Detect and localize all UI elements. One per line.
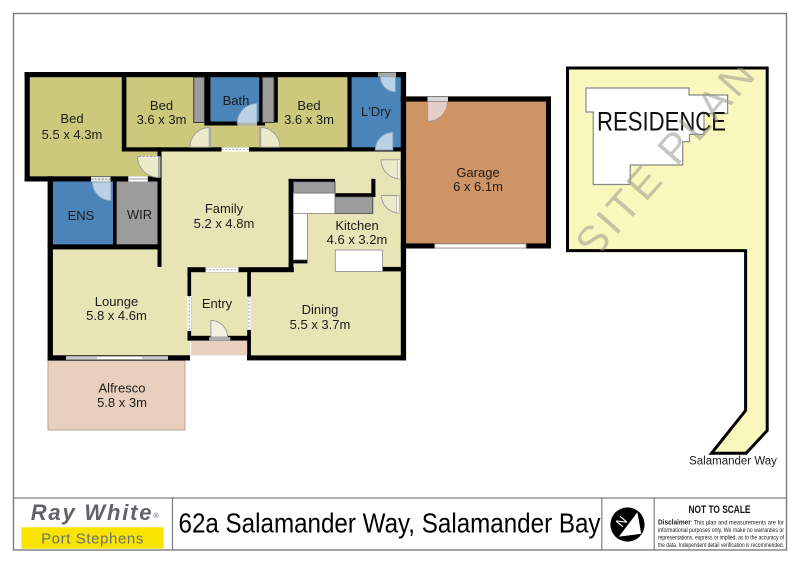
svg-text:Entry: Entry — [202, 296, 233, 311]
svg-text:3.6 x 3m: 3.6 x 3m — [284, 112, 334, 127]
svg-text:5.5 x 3.7m: 5.5 x 3.7m — [290, 317, 351, 332]
svg-text:5.2 x 4.8m: 5.2 x 4.8m — [194, 216, 255, 231]
svg-text:Lounge: Lounge — [95, 294, 138, 309]
svg-text:6 x 6.1m: 6 x 6.1m — [453, 179, 503, 194]
svg-text:Port Stephens: Port Stephens — [41, 531, 144, 548]
svg-text:Salamander Way: Salamander Way — [689, 456, 777, 468]
svg-text:ENS: ENS — [68, 208, 95, 223]
svg-text:Kitchen: Kitchen — [335, 218, 378, 233]
svg-text:NOT TO SCALE: NOT TO SCALE — [689, 504, 751, 516]
svg-text:Bed: Bed — [60, 111, 83, 126]
svg-text:the data. Independent detail v: the data. Independent detail verificatio… — [658, 542, 784, 549]
svg-text:®: ® — [154, 512, 160, 520]
svg-text:L'Dry: L'Dry — [361, 104, 391, 119]
svg-text:Disclaimer: This plan and meas: Disclaimer: This plan and measurements a… — [658, 518, 785, 527]
svg-text:5.8 x 3m: 5.8 x 3m — [97, 395, 147, 410]
svg-text:Bed: Bed — [297, 98, 320, 113]
svg-text:WIR: WIR — [127, 207, 152, 222]
svg-text:Dining: Dining — [302, 302, 339, 317]
svg-text:4.6 x 3.2m: 4.6 x 3.2m — [327, 232, 388, 247]
svg-text:3.6 x 3m: 3.6 x 3m — [137, 112, 187, 127]
svg-text:Family: Family — [205, 201, 244, 216]
svg-text:representations, express or im: representations, express or implied, as … — [658, 535, 784, 542]
svg-text:Bed: Bed — [150, 98, 173, 113]
svg-text:5.5 x 4.3m: 5.5 x 4.3m — [42, 127, 103, 142]
svg-text:62a Salamander Way, Salamander: 62a Salamander Way, Salamander Bay — [179, 508, 601, 539]
svg-text:Ray White: Ray White — [31, 500, 154, 525]
svg-text:Garage: Garage — [456, 165, 499, 180]
svg-text:informational purposes only. W: informational purposes only. We make no … — [658, 527, 785, 534]
svg-text:Alfresco: Alfresco — [99, 381, 146, 396]
svg-text:Bath: Bath — [223, 93, 250, 108]
svg-text:5.8 x 4.6m: 5.8 x 4.6m — [86, 308, 147, 323]
